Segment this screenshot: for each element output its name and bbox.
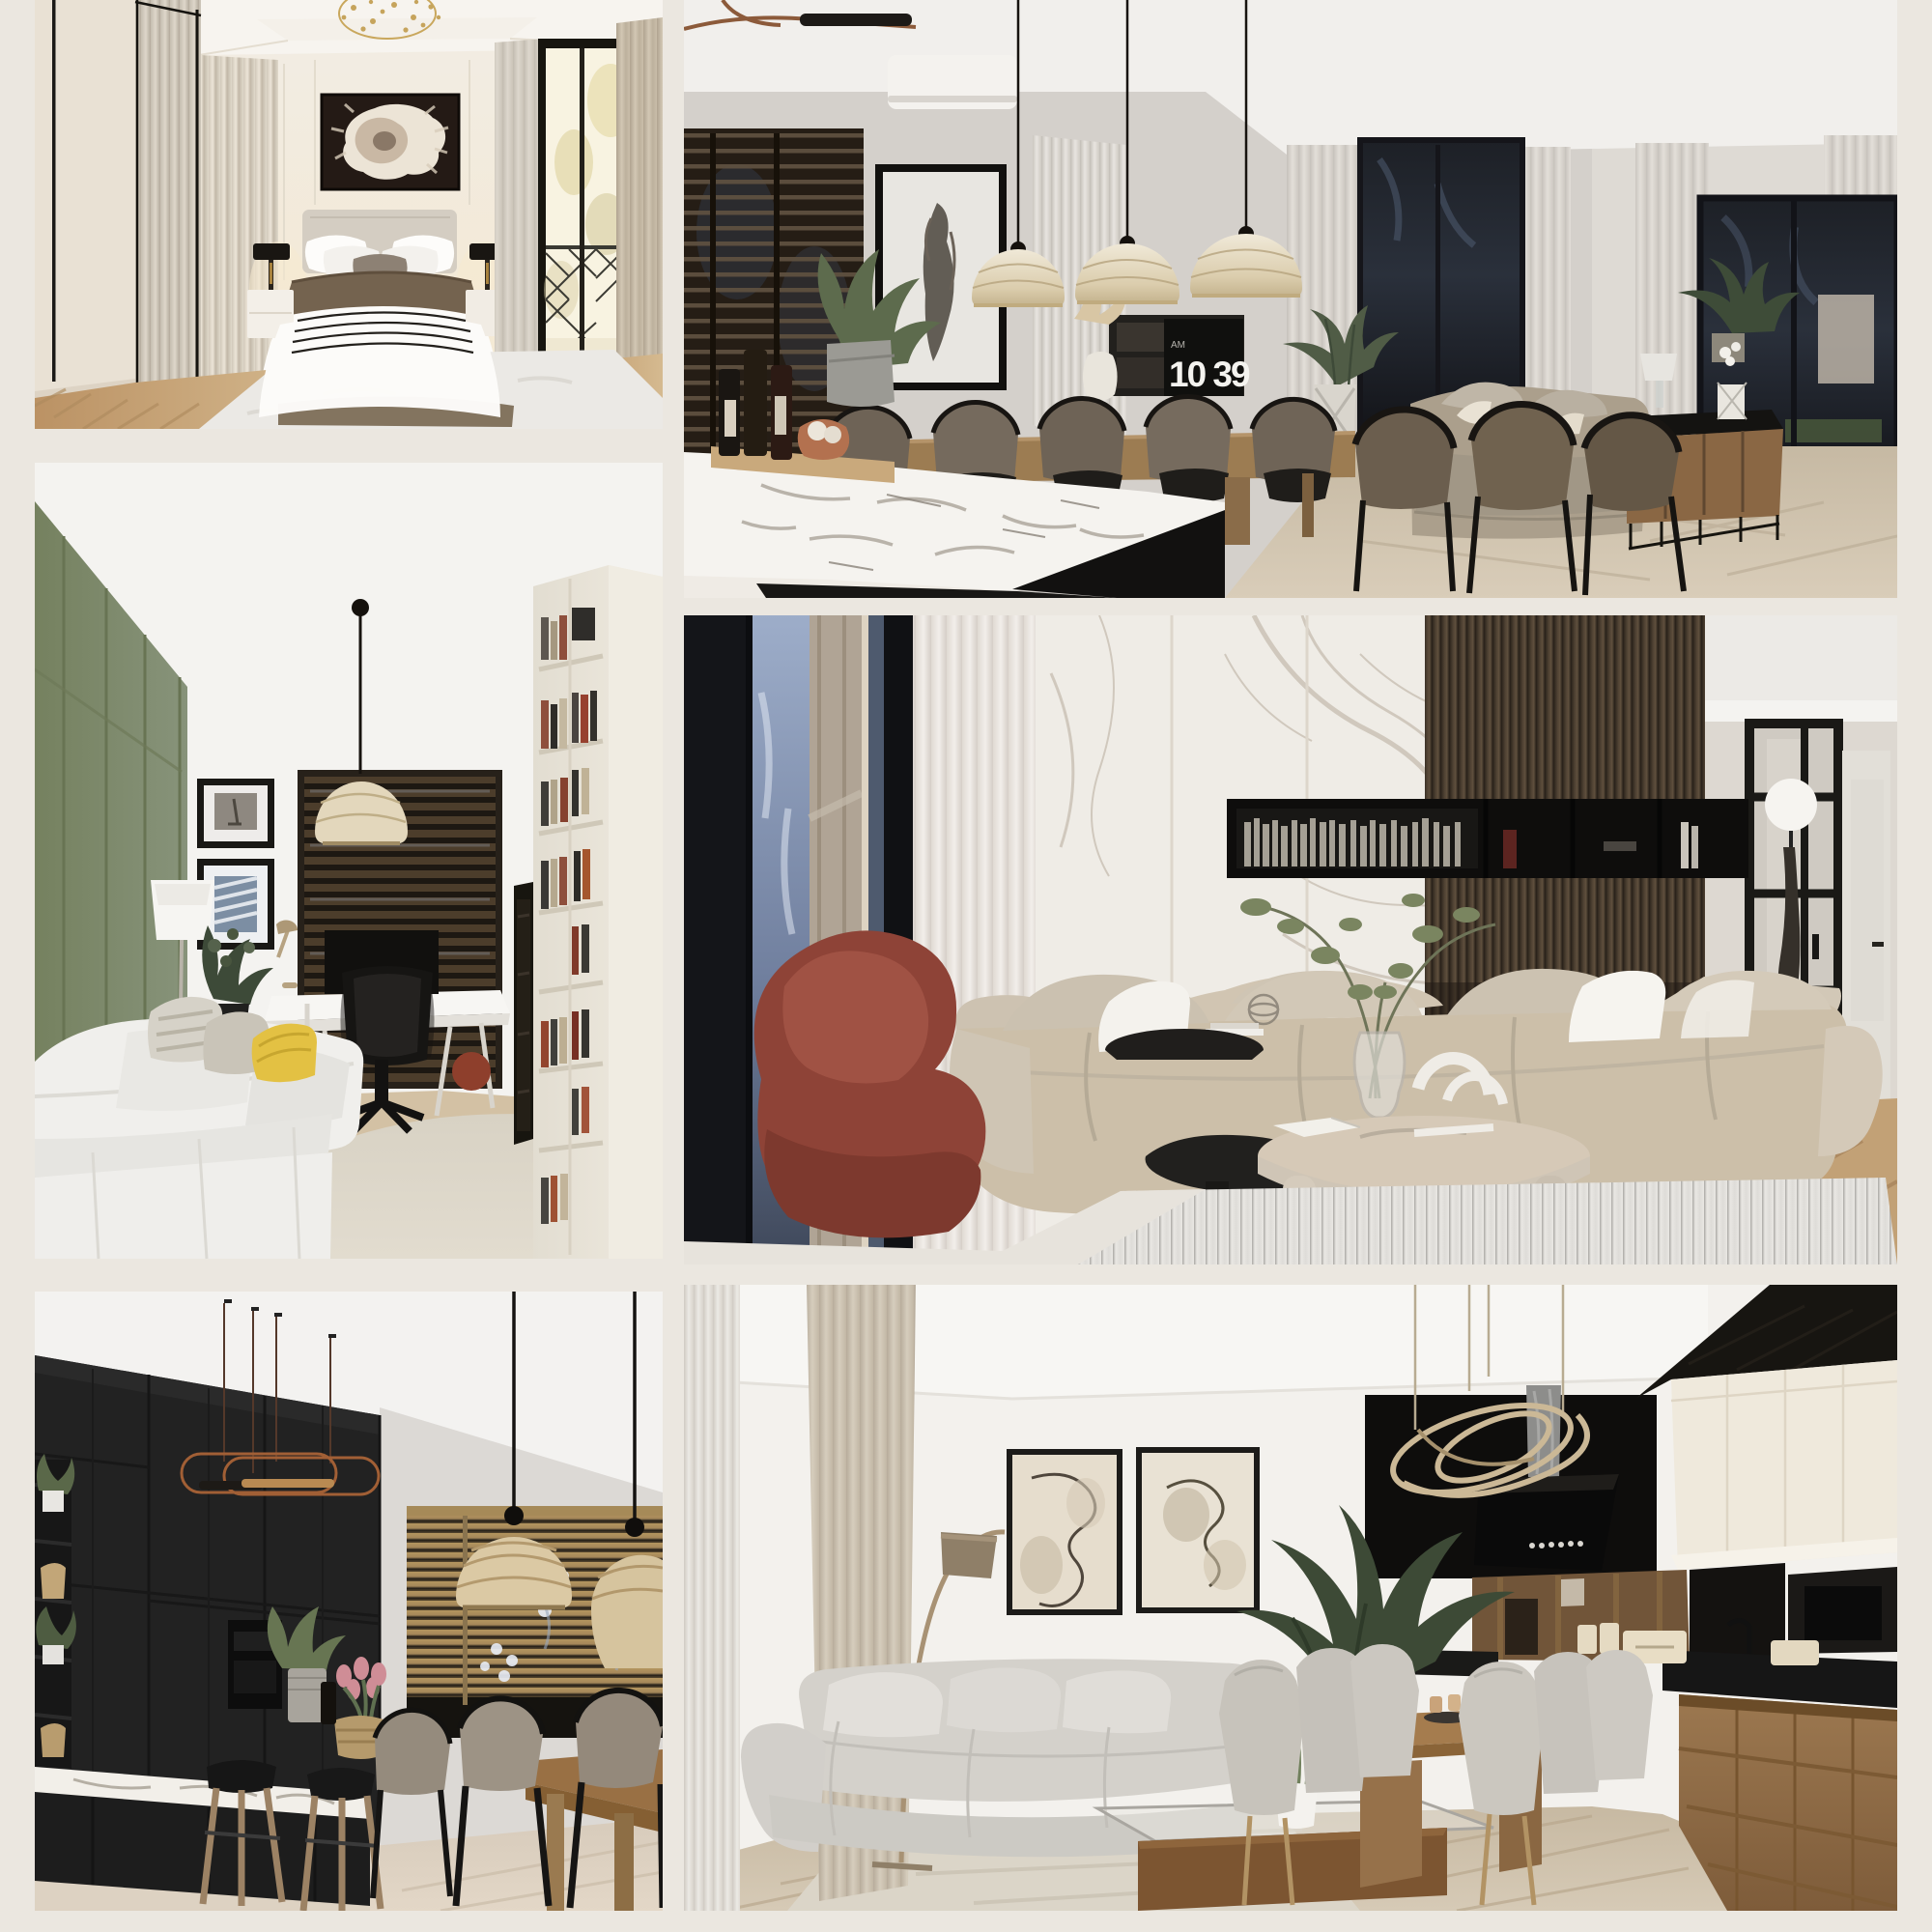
svg-text:10 39: 10 39: [1169, 355, 1250, 394]
svg-text:AM: AM: [1171, 340, 1185, 351]
